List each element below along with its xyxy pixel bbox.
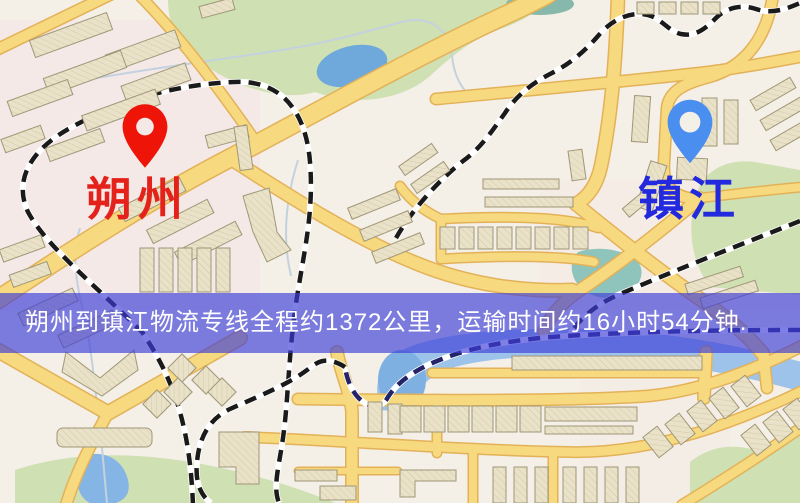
origin-label: 朔州 — [86, 177, 188, 223]
destination-pin-shape — [668, 100, 713, 164]
destination-pin-icon — [666, 97, 714, 166]
destination-label: 镇江 — [638, 177, 740, 223]
map-image — [0, 0, 800, 503]
origin-pin-shape — [123, 104, 168, 168]
origin-pin-icon — [121, 103, 169, 169]
destination-marker — [666, 97, 714, 166]
origin-marker — [121, 103, 169, 169]
route-info-banner: 朔州到镇江物流专线全程约1372公里，运输时间约16小时54分钟. — [0, 293, 800, 353]
map-screenshot: 朔州 镇江 朔州到镇江物流专线全程约1372公里，运输时间约16小时54分钟. — [0, 0, 800, 503]
route-info-text: 朔州到镇江物流专线全程约1372公里，运输时间约16小时54分钟. — [25, 309, 747, 336]
